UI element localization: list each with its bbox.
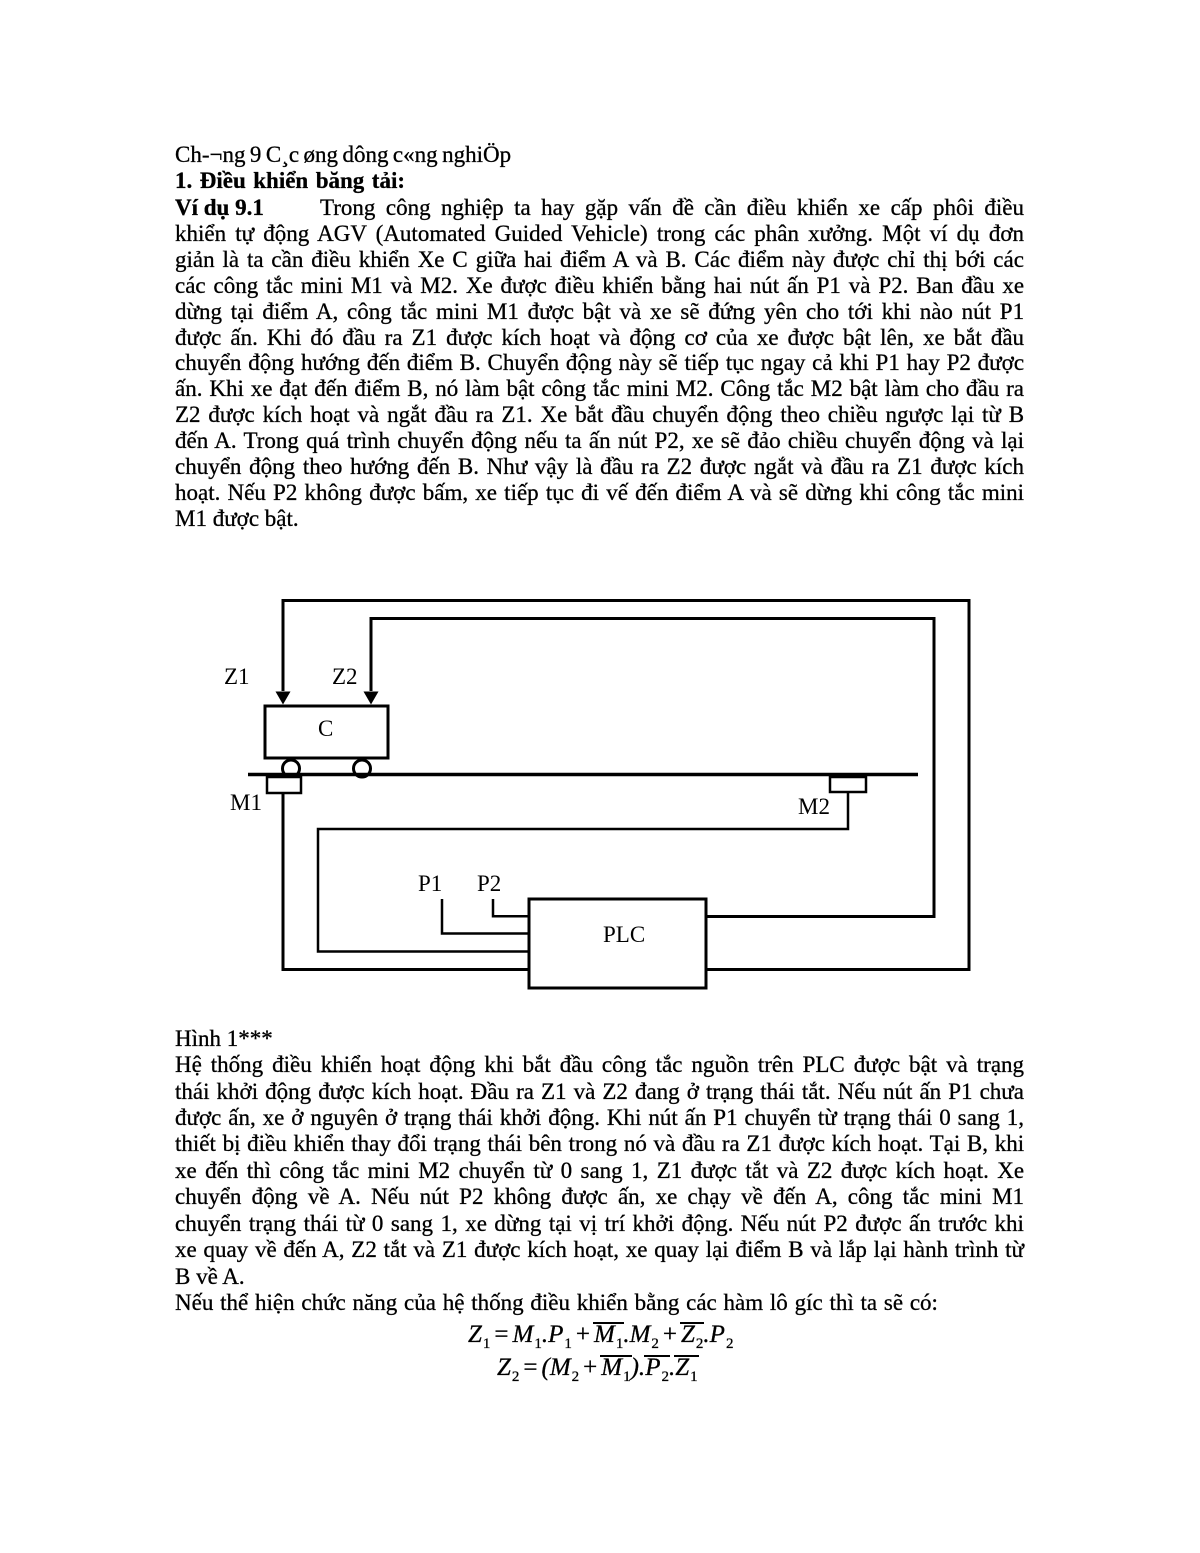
svg-text:M2: M2 [798,794,830,819]
svg-text:Z1: Z1 [224,664,250,689]
svg-text:C: C [318,716,333,741]
svg-text:P2: P2 [477,871,501,896]
svg-text:P1: P1 [418,871,442,896]
svg-text:Z2: Z2 [332,664,358,689]
svg-text:M1: M1 [230,790,262,815]
svg-text:PLC: PLC [603,922,645,947]
